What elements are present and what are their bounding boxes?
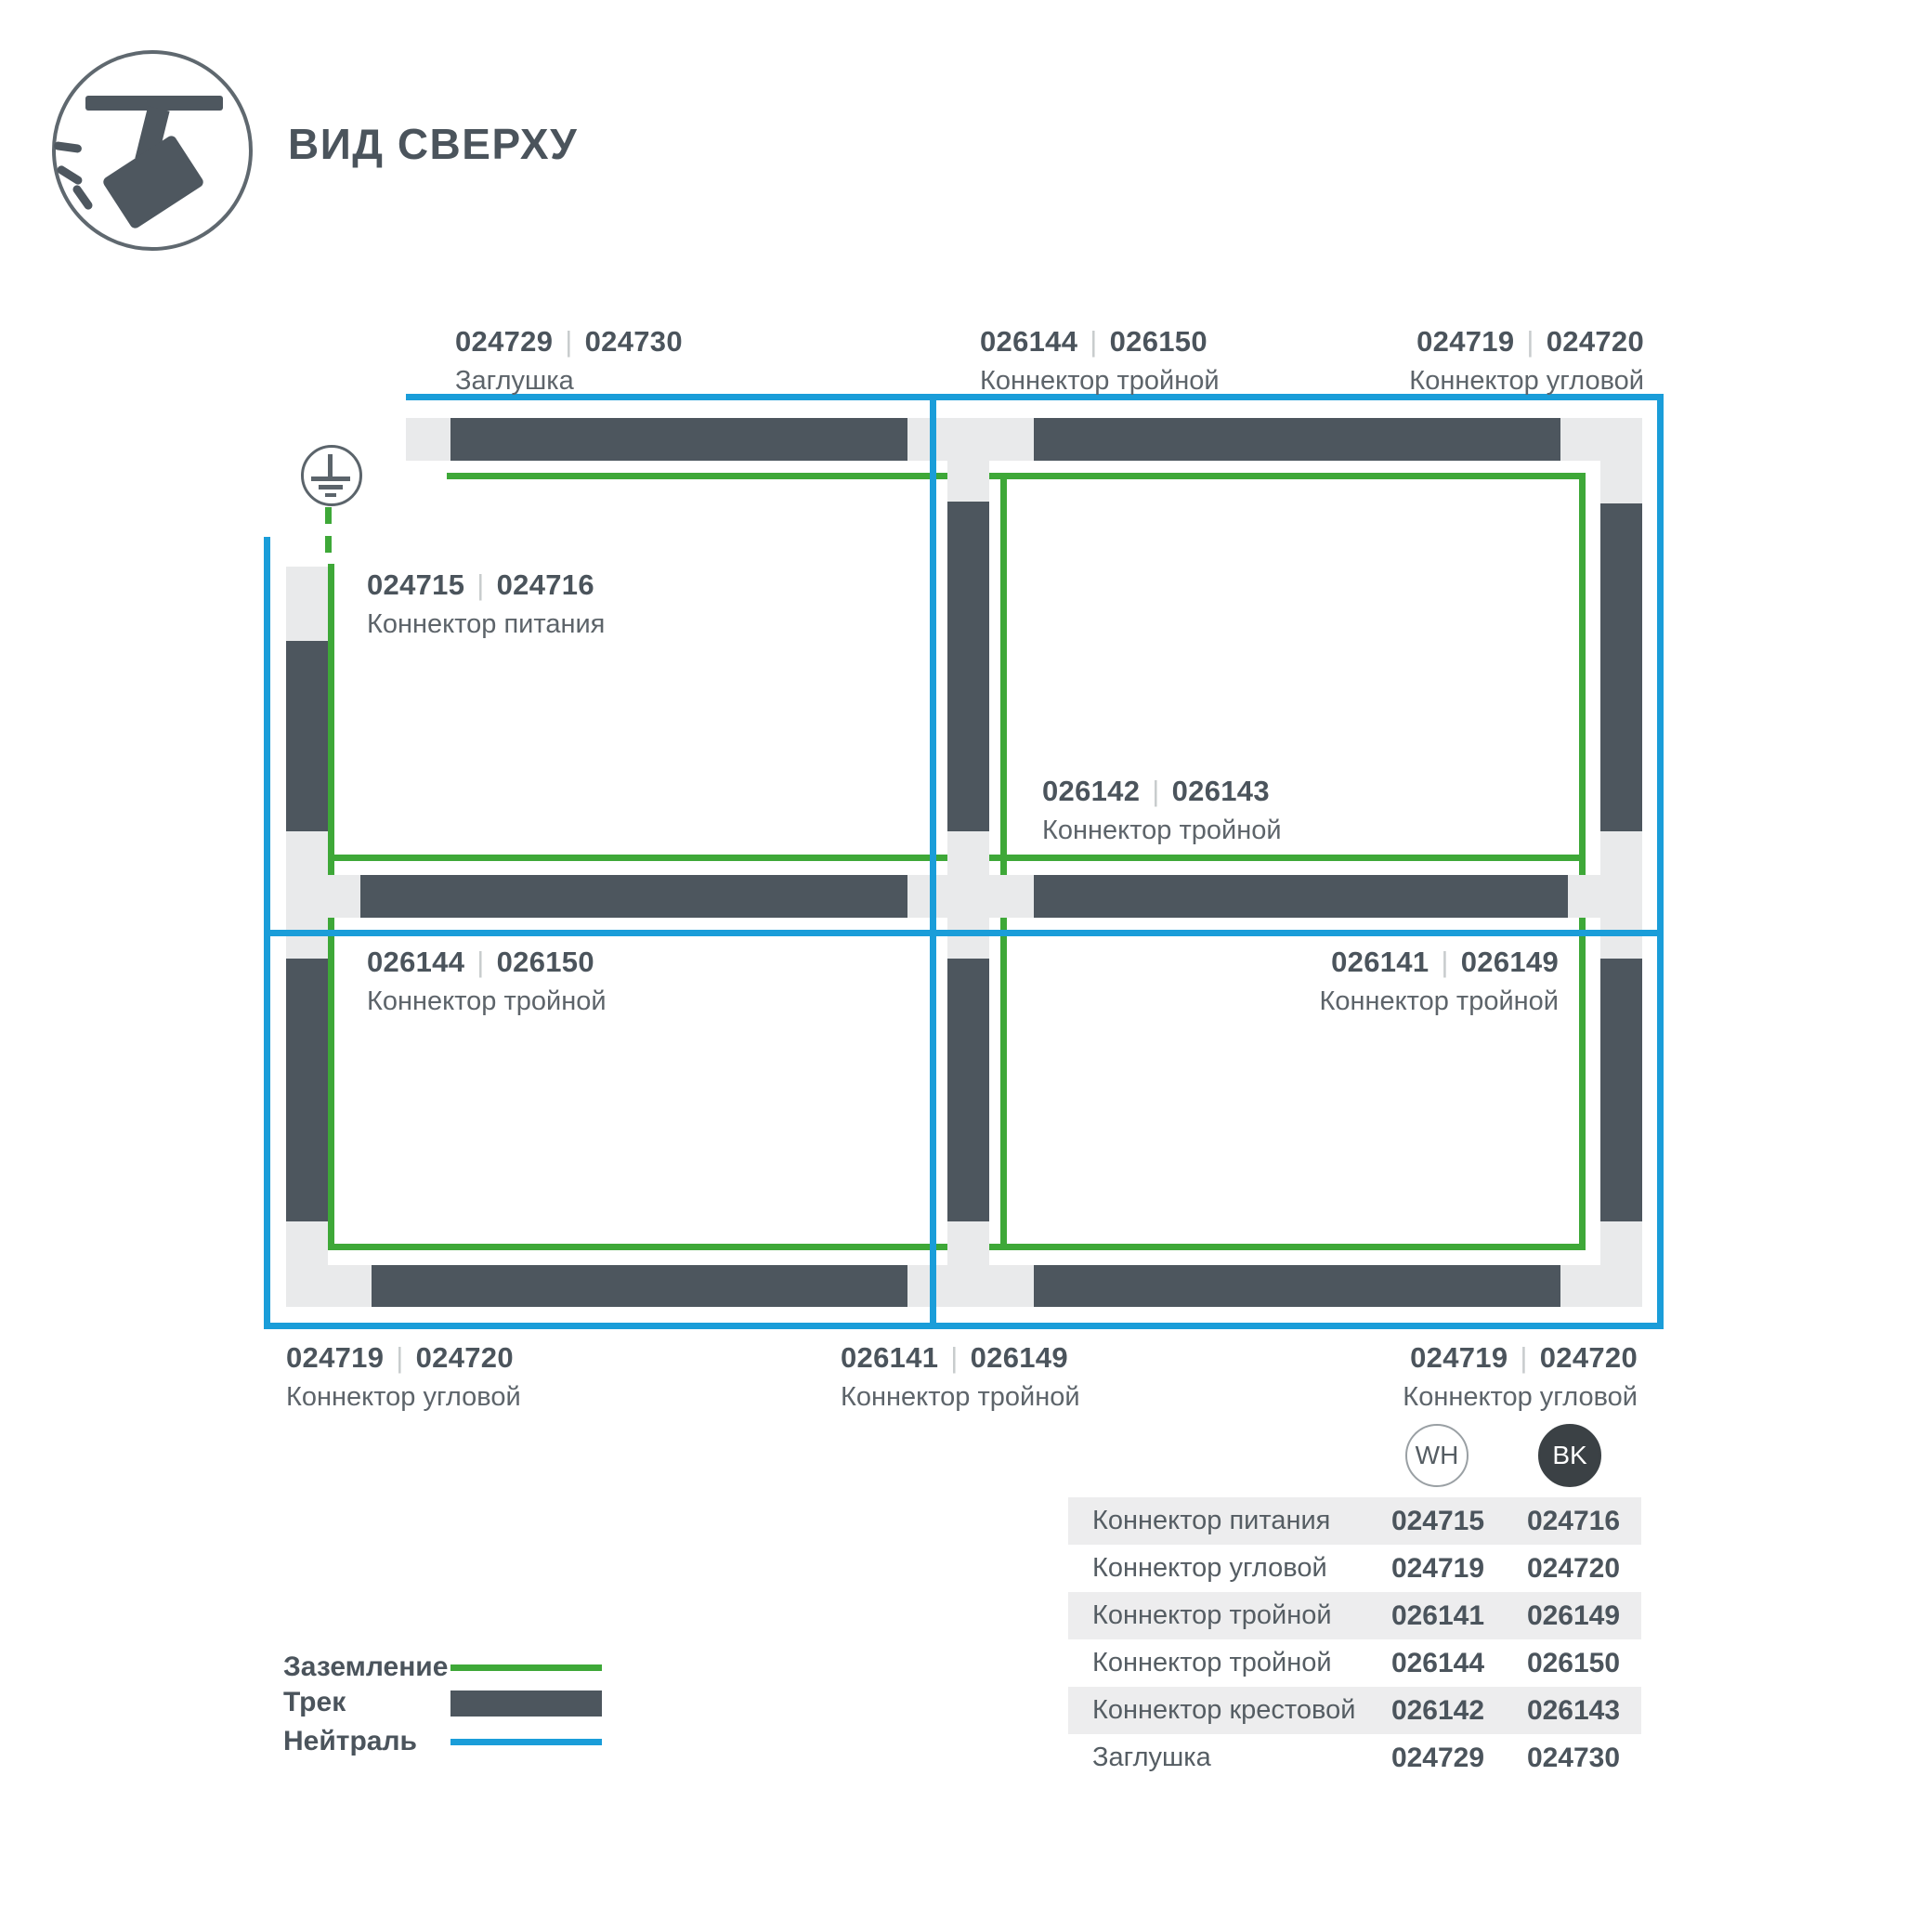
- neutral-line: [1657, 394, 1664, 1329]
- track-segment: [1600, 503, 1642, 831]
- light-ray-icon: [56, 164, 84, 187]
- neutral-line: [264, 930, 1664, 936]
- track-segment: [450, 418, 907, 461]
- bk-color-badge: BK: [1538, 1424, 1601, 1487]
- track-segment: [360, 875, 907, 918]
- part-label-corner-bottom-right: 024719|024720 Коннектор угловой: [1403, 1341, 1638, 1413]
- top-view-diagram-page: ВИД СВЕРХУ 024729|024730: [0, 0, 1932, 1932]
- table-row: Коннектор питания 024715 024716: [1068, 1497, 1641, 1545]
- legend-item-neutral: Нейтраль: [283, 1726, 450, 1757]
- t-connector: [286, 831, 328, 959]
- cross-connector: [907, 875, 1034, 918]
- track-segment: [1034, 1265, 1560, 1307]
- table-row: Заглушка 024729 024730: [1068, 1734, 1641, 1782]
- neutral-line: [264, 1323, 1664, 1329]
- part-label-corner-top-right: 024719|024720 Коннектор угловой: [1409, 325, 1644, 397]
- light-ray-icon: [72, 184, 95, 212]
- neutral-line: [930, 394, 936, 1329]
- track-segment: [372, 1265, 907, 1307]
- track-segment: [286, 641, 328, 831]
- neutral-line-swatch: [450, 1739, 602, 1745]
- track-segment: [947, 502, 989, 831]
- page-title: ВИД СВЕРХУ: [288, 119, 578, 169]
- track-segment: [947, 959, 989, 1221]
- spotlight-icon: [52, 50, 253, 251]
- legend-item-track: Трек: [283, 1687, 450, 1718]
- ground-line: [1000, 473, 1007, 1250]
- part-label-endcap-top: 024729|024730 Заглушка: [455, 325, 683, 397]
- table-row: Коннектор тройной 026144 026150: [1068, 1639, 1641, 1687]
- part-label-cross-connector: 026142|026143 Коннектор тройной: [1042, 775, 1282, 846]
- track-bar-swatch: [450, 1690, 602, 1717]
- table-row: Коннектор угловой 024719 024720: [1068, 1545, 1641, 1592]
- part-label-corner-bottom-left: 024719|024720 Коннектор угловой: [286, 1341, 521, 1413]
- ground-line: [447, 473, 1586, 479]
- part-label-power-connector: 024715|024716 Коннектор питания: [367, 568, 605, 640]
- ground-symbol-icon: [301, 445, 362, 506]
- light-ray-icon: [54, 141, 83, 153]
- table-row: Коннектор крестовой 026142 026143: [1068, 1687, 1641, 1734]
- spotlight-head-icon-part: [101, 134, 205, 230]
- parts-table: Коннектор питания 024715 024716 Коннекто…: [1068, 1497, 1641, 1782]
- part-label-t-connector-left: 026144|026150 Коннектор тройной: [367, 946, 607, 1017]
- legend-item-ground: Заземление: [283, 1651, 450, 1683]
- t-connector: [1568, 875, 1600, 918]
- track-segment: [1600, 959, 1642, 1221]
- track-segment: [1034, 418, 1560, 461]
- track-segment: [1034, 875, 1568, 918]
- t-connector: [947, 461, 989, 502]
- part-label-t-connector-right: 026141|026149 Коннектор тройной: [1319, 946, 1559, 1017]
- t-connector: [328, 875, 360, 918]
- part-label-t-connector-top: 026144|026150 Коннектор тройной: [980, 325, 1220, 397]
- ground-line: [1579, 473, 1586, 1250]
- wh-color-badge: WH: [1405, 1424, 1469, 1487]
- ground-line-dashed: [325, 507, 332, 564]
- table-row: Коннектор тройной 026141 026149: [1068, 1592, 1641, 1639]
- track-segment: [286, 959, 328, 1221]
- ground-line-swatch: [450, 1664, 602, 1671]
- t-connector: [947, 1221, 989, 1265]
- part-label-t-connector-bottom: 026141|026149 Коннектор тройной: [841, 1341, 1080, 1413]
